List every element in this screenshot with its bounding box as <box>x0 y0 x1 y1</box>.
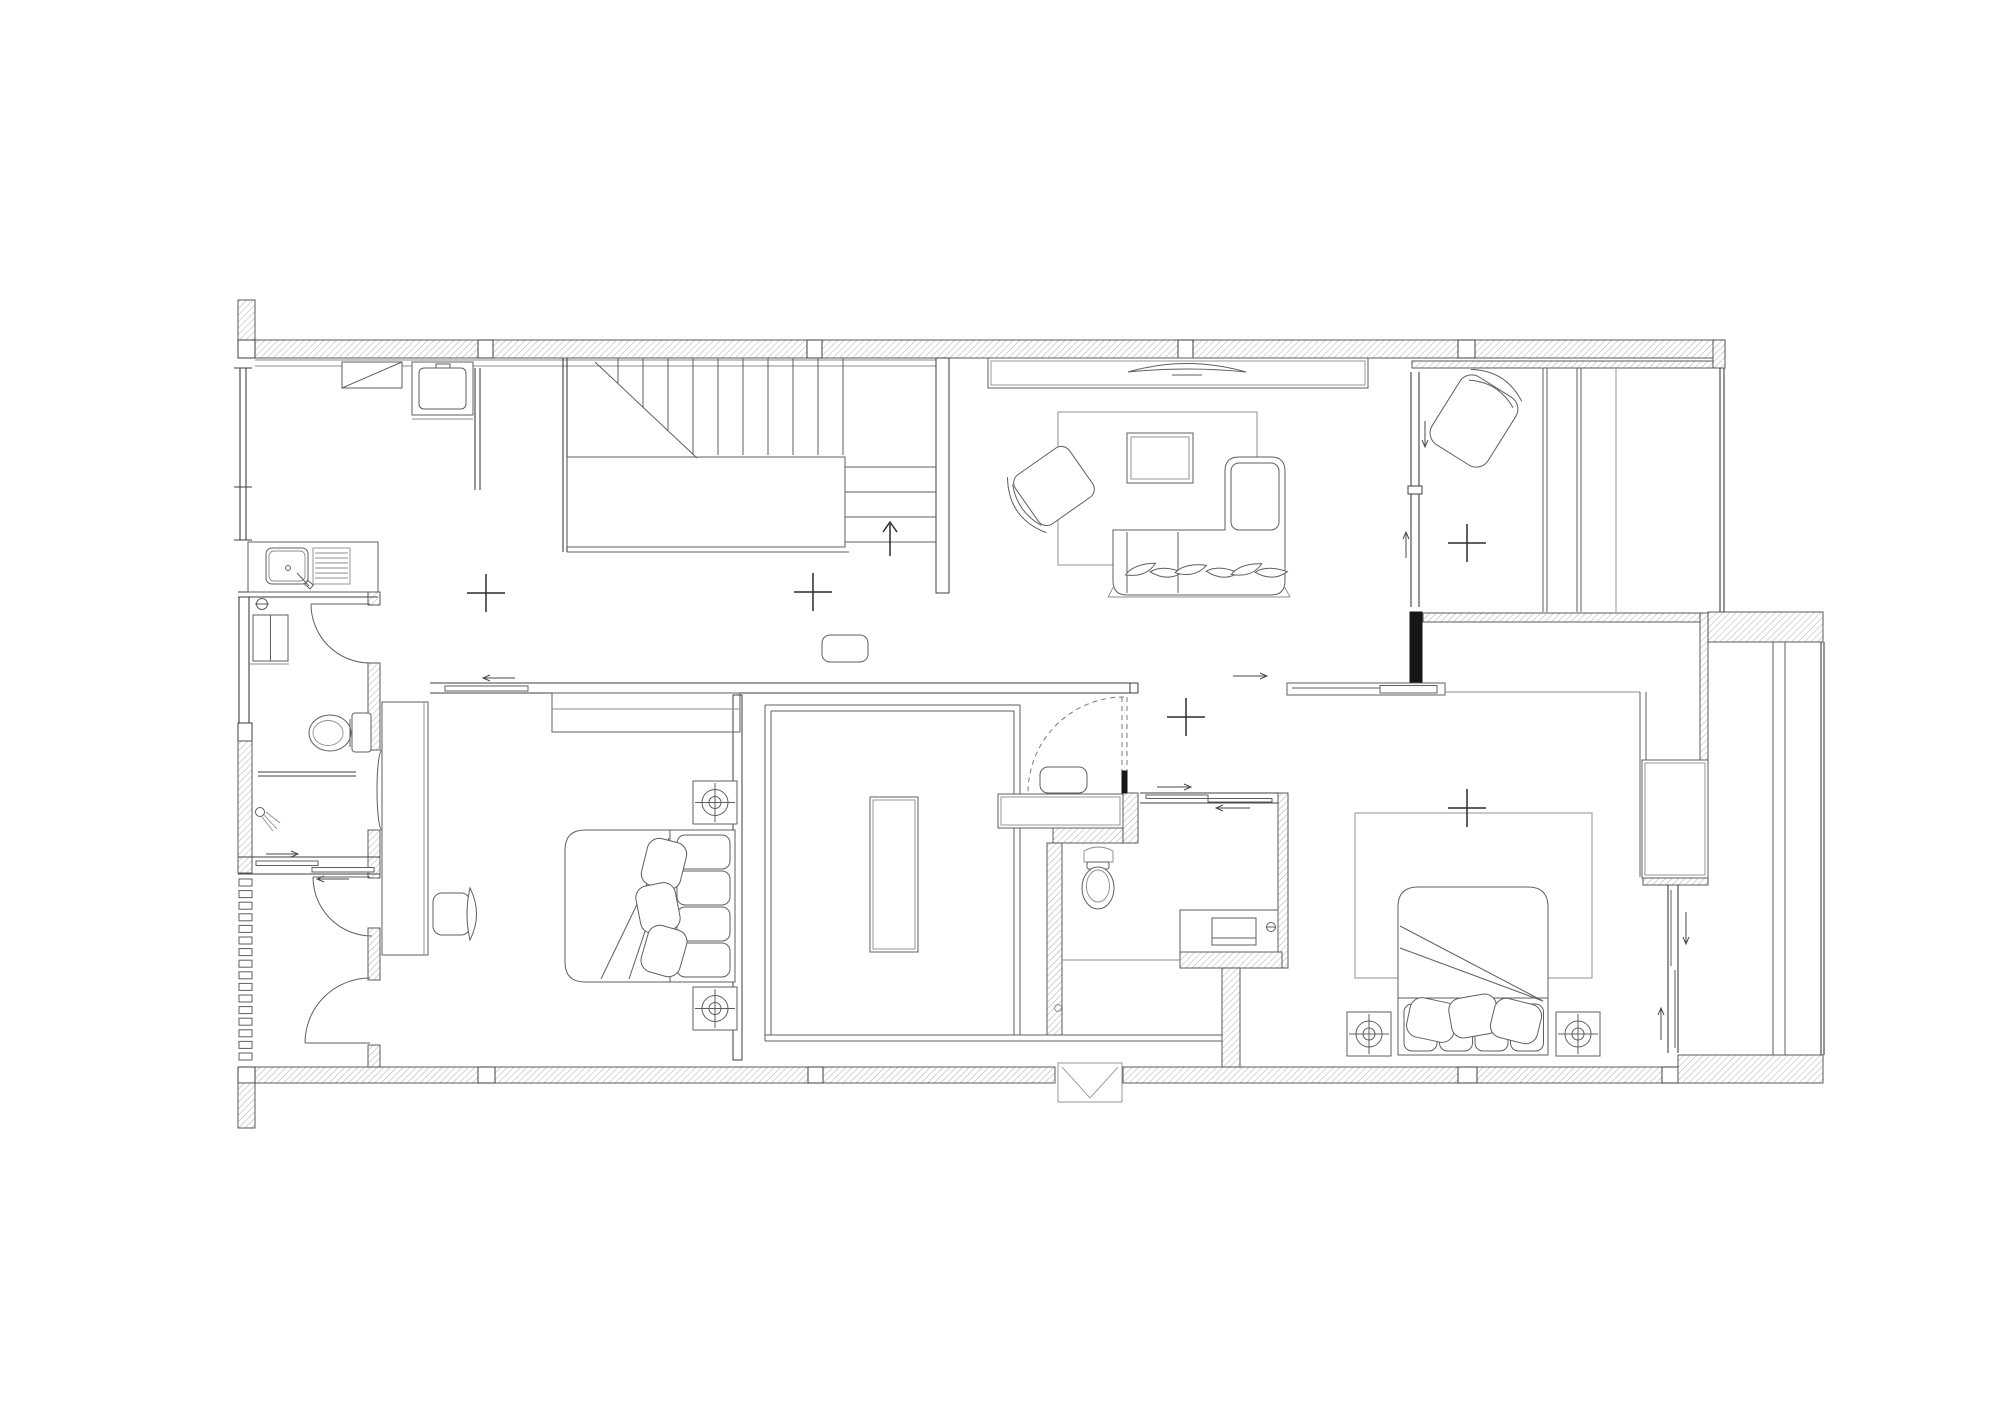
column <box>478 1067 495 1083</box>
left-wall-hatched <box>238 741 252 873</box>
column <box>238 723 252 741</box>
kitchen-sink-counter-icon <box>248 542 378 592</box>
corridor-top-wall <box>1708 612 1823 642</box>
top-wall <box>255 340 1725 358</box>
closet-island-icon <box>870 797 918 952</box>
nightstand-lamp-icon <box>693 781 737 824</box>
solid-black-column <box>1410 612 1422 682</box>
column <box>808 1067 823 1083</box>
column <box>807 340 822 358</box>
top-wall-end-cap <box>1713 340 1725 368</box>
top-wall-inner-band <box>1412 361 1713 368</box>
floor-plan-canvas <box>0 0 2000 1413</box>
floor-plan-page <box>0 0 2000 1413</box>
wall-cabinet-icon <box>342 362 402 388</box>
column <box>238 1067 255 1083</box>
toilet-icon <box>309 713 371 752</box>
nightstand-lamp-icon <box>1556 1012 1600 1056</box>
column <box>238 340 255 358</box>
doormat-icon <box>822 635 868 662</box>
nightstand-lamp-icon <box>693 987 737 1030</box>
bottom-wall-right <box>1123 1067 1662 1083</box>
wardrobe-icon <box>1642 760 1708 878</box>
column <box>1662 1067 1678 1083</box>
washing-machine-icon <box>412 362 473 419</box>
wall-end-cap <box>1130 683 1138 693</box>
tv-console-icon <box>988 358 1368 388</box>
vanity-sink-icon <box>1180 910 1278 952</box>
stair-living-divider-wall <box>936 358 949 593</box>
column <box>1178 340 1193 358</box>
bottom-wall-far-right <box>1678 1055 1823 1083</box>
column <box>478 340 493 358</box>
nightstand-lamp-icon <box>1347 1012 1391 1056</box>
wall-stub-bottom-left <box>238 1083 255 1128</box>
bottom-wall-left <box>255 1067 1055 1083</box>
bench-icon <box>1040 767 1087 793</box>
lounge-south-wall <box>1423 613 1700 622</box>
double-bed-icon <box>1398 887 1548 1055</box>
wall-stub-top-left <box>238 300 255 340</box>
ac-window-box-icon <box>1058 1063 1122 1102</box>
double-bed-icon <box>565 830 735 982</box>
column <box>1458 1067 1477 1083</box>
column <box>1458 340 1475 358</box>
desk-chair-icon <box>433 888 477 940</box>
desk-icon <box>382 702 428 955</box>
coffee-table-icon <box>1127 433 1193 483</box>
